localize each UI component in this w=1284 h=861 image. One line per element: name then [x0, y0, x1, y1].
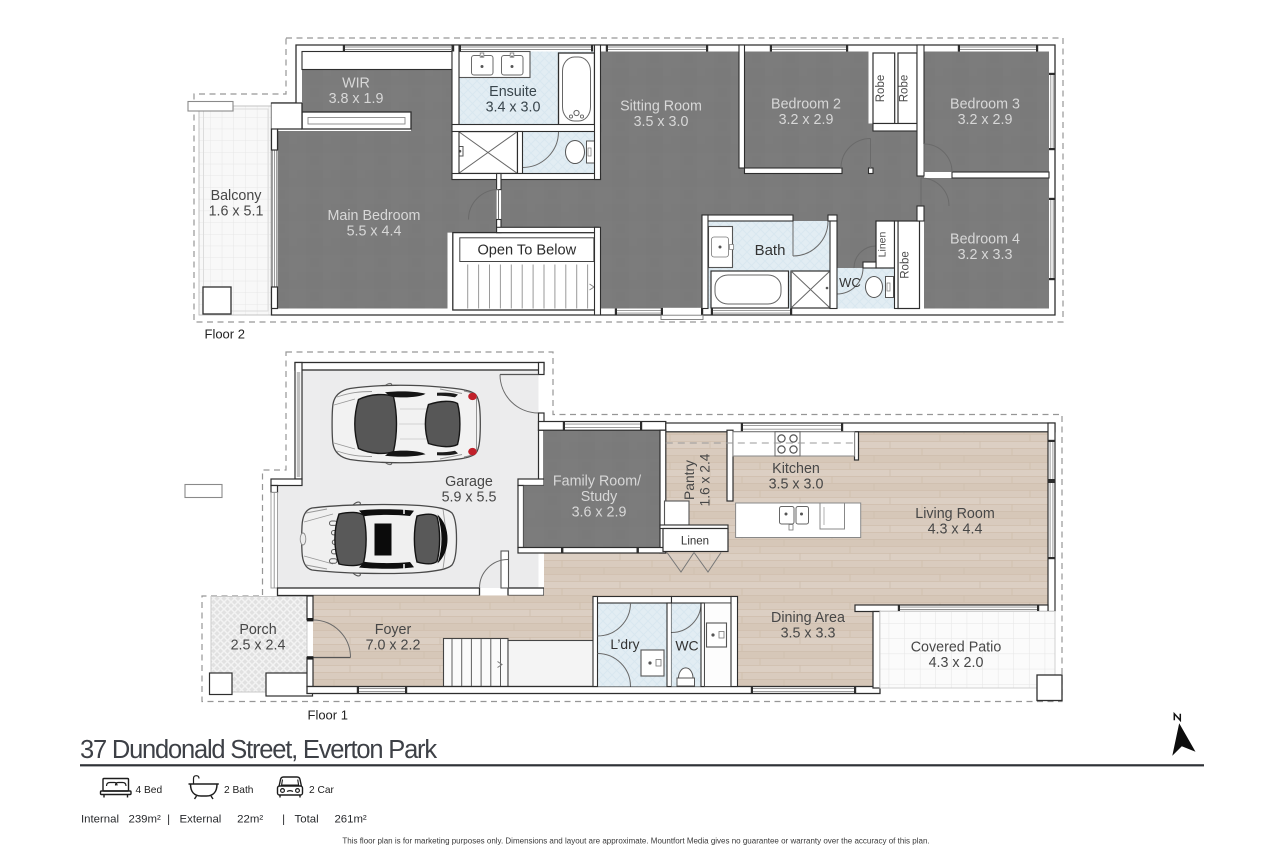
svg-text:Kitchen: Kitchen [772, 461, 820, 477]
svg-text:WIR: WIR [342, 76, 370, 92]
svg-text:3.4 x 3.0: 3.4 x 3.0 [486, 100, 541, 116]
svg-text:3.5 x 3.3: 3.5 x 3.3 [781, 626, 836, 642]
svg-text:Open To Below: Open To Below [477, 243, 576, 259]
svg-text:Family Room/: Family Room/ [553, 474, 641, 490]
svg-text:2 Bath: 2 Bath [224, 785, 253, 796]
svg-text:2 Car: 2 Car [309, 785, 335, 796]
svg-text:1.6 x 5.1: 1.6 x 5.1 [209, 204, 264, 220]
svg-text:3.2 x 2.9: 3.2 x 2.9 [779, 112, 834, 128]
svg-text:Ensuite: Ensuite [489, 84, 537, 100]
svg-text:Balcony: Balcony [211, 188, 263, 204]
svg-text:Bath: Bath [755, 242, 786, 259]
svg-text:WC: WC [839, 275, 861, 290]
svg-text:Robe: Robe [900, 251, 912, 279]
svg-text:4 Bed: 4 Bed [136, 785, 163, 796]
svg-text:Foyer: Foyer [375, 622, 412, 638]
svg-text:3.2 x 3.3: 3.2 x 3.3 [958, 247, 1013, 263]
svg-text:This floor plan is for marketi: This floor plan is for marketing purpose… [342, 837, 929, 846]
svg-text:7.0 x 2.2: 7.0 x 2.2 [366, 638, 421, 654]
svg-text:Internal 239m² | External: Internal 239m² | External 22m² | Total 2… [81, 814, 367, 826]
svg-text:WC: WC [675, 638, 698, 654]
svg-text:3.6 x 2.9: 3.6 x 2.9 [572, 505, 627, 521]
svg-text:3.5 x 3.0: 3.5 x 3.0 [634, 114, 689, 130]
svg-text:Floor 2: Floor 2 [205, 327, 245, 342]
svg-text:Covered Patio: Covered Patio [911, 640, 1002, 656]
svg-text:Bedroom 3: Bedroom 3 [950, 97, 1020, 113]
svg-text:Study: Study [581, 489, 618, 505]
svg-text:4.3 x 2.0: 4.3 x 2.0 [929, 655, 984, 671]
svg-text:1.6 x 2.4: 1.6 x 2.4 [698, 453, 713, 506]
svg-text:Robe: Robe [875, 75, 887, 103]
svg-text:Porch: Porch [239, 622, 276, 638]
svg-text:Main Bedroom: Main Bedroom [328, 208, 421, 224]
svg-text:3.2 x 2.9: 3.2 x 2.9 [958, 112, 1013, 128]
svg-text:Pantry: Pantry [682, 460, 697, 500]
svg-text:5.5 x 4.4: 5.5 x 4.4 [347, 224, 402, 240]
svg-text:Garage: Garage [445, 474, 493, 490]
svg-text:Robe: Robe [899, 75, 911, 103]
svg-text:Bedroom 2: Bedroom 2 [771, 97, 841, 113]
svg-text:4.3 x 4.4: 4.3 x 4.4 [928, 522, 983, 538]
svg-text:L’dry: L’dry [610, 637, 639, 652]
svg-text:Linen: Linen [681, 536, 709, 548]
svg-text:3.8 x 1.9: 3.8 x 1.9 [329, 91, 384, 107]
svg-text:Bedroom 4: Bedroom 4 [950, 232, 1020, 248]
svg-text:5.9 x 5.5: 5.9 x 5.5 [442, 490, 497, 506]
svg-text:Dining Area: Dining Area [771, 610, 845, 626]
svg-text:Sitting Room: Sitting Room [620, 99, 702, 115]
svg-text:Living Room: Living Room [915, 506, 994, 522]
svg-text:3.5 x 3.0: 3.5 x 3.0 [769, 477, 824, 493]
svg-text:Linen: Linen [877, 232, 889, 258]
svg-text:Floor 1: Floor 1 [308, 708, 348, 723]
svg-text:37 Dundonald Street, Everton P: 37 Dundonald Street, Everton Park [80, 736, 437, 764]
svg-text:2.5 x 2.4: 2.5 x 2.4 [231, 638, 286, 654]
